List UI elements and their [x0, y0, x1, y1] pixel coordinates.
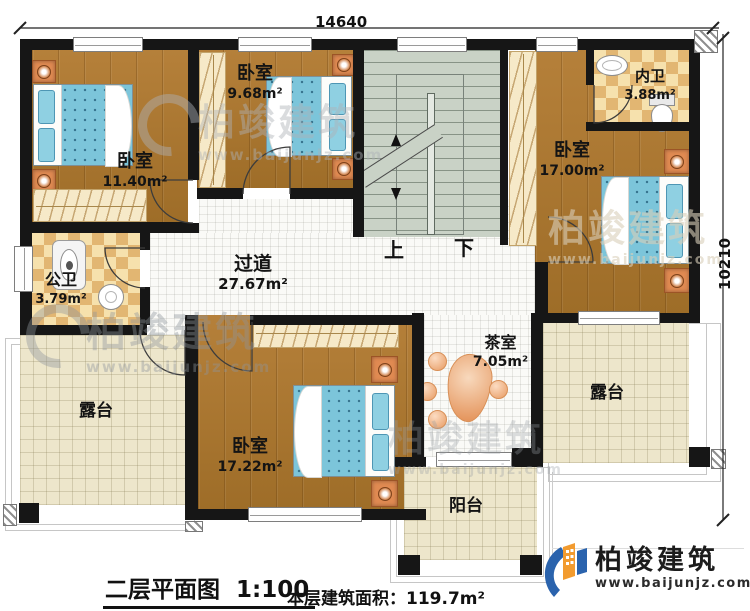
bedside-table [332, 54, 355, 76]
wall-segment [586, 39, 594, 85]
room-label-bedroom-right: 卧室 17.00m² [517, 141, 627, 180]
sink [98, 284, 124, 310]
wardrobe [33, 189, 147, 222]
wall-segment [140, 287, 150, 325]
wall-segment [250, 315, 412, 325]
dimension-height-label: 10210 [716, 234, 734, 294]
room-label-terrace-right: 露台 [577, 384, 637, 403]
plan-title: 二层平面图 1:100 [103, 570, 315, 609]
wall-segment [512, 448, 543, 467]
window [73, 37, 143, 52]
room-label-bath-public: 公卫 3.79m² [21, 271, 101, 307]
wall-segment [185, 509, 250, 520]
stairs-up-label: 上 [384, 234, 404, 263]
wall-segment [140, 233, 150, 250]
wall-segment [20, 39, 32, 246]
wall-segment [353, 39, 364, 237]
bedside-table [371, 480, 398, 507]
room-label-tea-room: 茶室 7.05m² [458, 334, 543, 371]
wall-segment [660, 313, 700, 323]
brand-name: 柏竣建筑 [595, 547, 750, 575]
wall-segment [412, 313, 424, 467]
window [248, 507, 362, 522]
wall-segment [32, 222, 188, 233]
bedside-table [664, 149, 690, 174]
stairs-down-label: 下 [454, 232, 474, 261]
room-label-corridor: 过道 27.67m² [203, 254, 303, 293]
room-label-bedroom-bottom: 卧室 17.22m² [200, 437, 300, 476]
tea-stool [428, 352, 447, 371]
window [397, 37, 467, 52]
wall-segment [535, 262, 548, 323]
dimension-width-label: 14640 [315, 13, 367, 31]
bed [601, 176, 689, 264]
bedside-table [371, 356, 398, 383]
wall-segment [185, 315, 198, 520]
bedside-table [32, 60, 56, 83]
wall-segment [20, 325, 147, 335]
room-label-terrace-left: 露台 [66, 402, 126, 421]
window [536, 37, 578, 52]
floor-plan-canvas: 14640 10210 卧室 11.40m² 卧室 9.68m² 卧室 17.0… [0, 0, 750, 611]
wall-segment [395, 457, 426, 467]
brand-website: www.baijunjz.com [595, 576, 750, 591]
brand-logo-icon [542, 540, 588, 598]
tea-stool [428, 410, 447, 429]
room-label-bath-inner: 内卫 3.88m² [605, 68, 695, 103]
hatch-mark [185, 521, 203, 532]
tea-stool [489, 380, 508, 399]
wall-segment [290, 188, 353, 199]
window [238, 37, 312, 52]
wall-segment [360, 509, 426, 520]
hatch-mark [694, 30, 718, 53]
hatch-mark [711, 449, 726, 469]
corner-post [520, 555, 542, 575]
room-label-balcony: 阳台 [436, 497, 496, 516]
bedside-table [332, 158, 355, 180]
corner-post [689, 447, 710, 467]
corner-post [19, 503, 39, 523]
stair-arrow-down-icon [391, 188, 401, 200]
hatch-mark [3, 504, 17, 526]
stair-arrow-up-icon [391, 134, 401, 146]
wall-segment [586, 122, 689, 131]
brand-logo: 柏竣建筑 www.baijunjz.com [542, 540, 750, 598]
bedside-table [664, 268, 690, 293]
wall-segment [500, 39, 508, 245]
stair-center-rail [427, 93, 435, 235]
room-label-bedroom-top-left: 卧室 11.40m² [80, 152, 190, 191]
wall-segment [188, 223, 199, 233]
floor-area-text: 本层建筑面积：119.7m² [287, 584, 485, 609]
window [578, 311, 660, 325]
bed [293, 385, 395, 477]
staircase [364, 50, 500, 237]
window [436, 452, 512, 467]
corner-post [398, 555, 420, 575]
wall-segment [197, 188, 243, 199]
wall-segment [578, 39, 700, 50]
room-label-bedroom-top-mid: 卧室 9.68m² [205, 64, 305, 103]
